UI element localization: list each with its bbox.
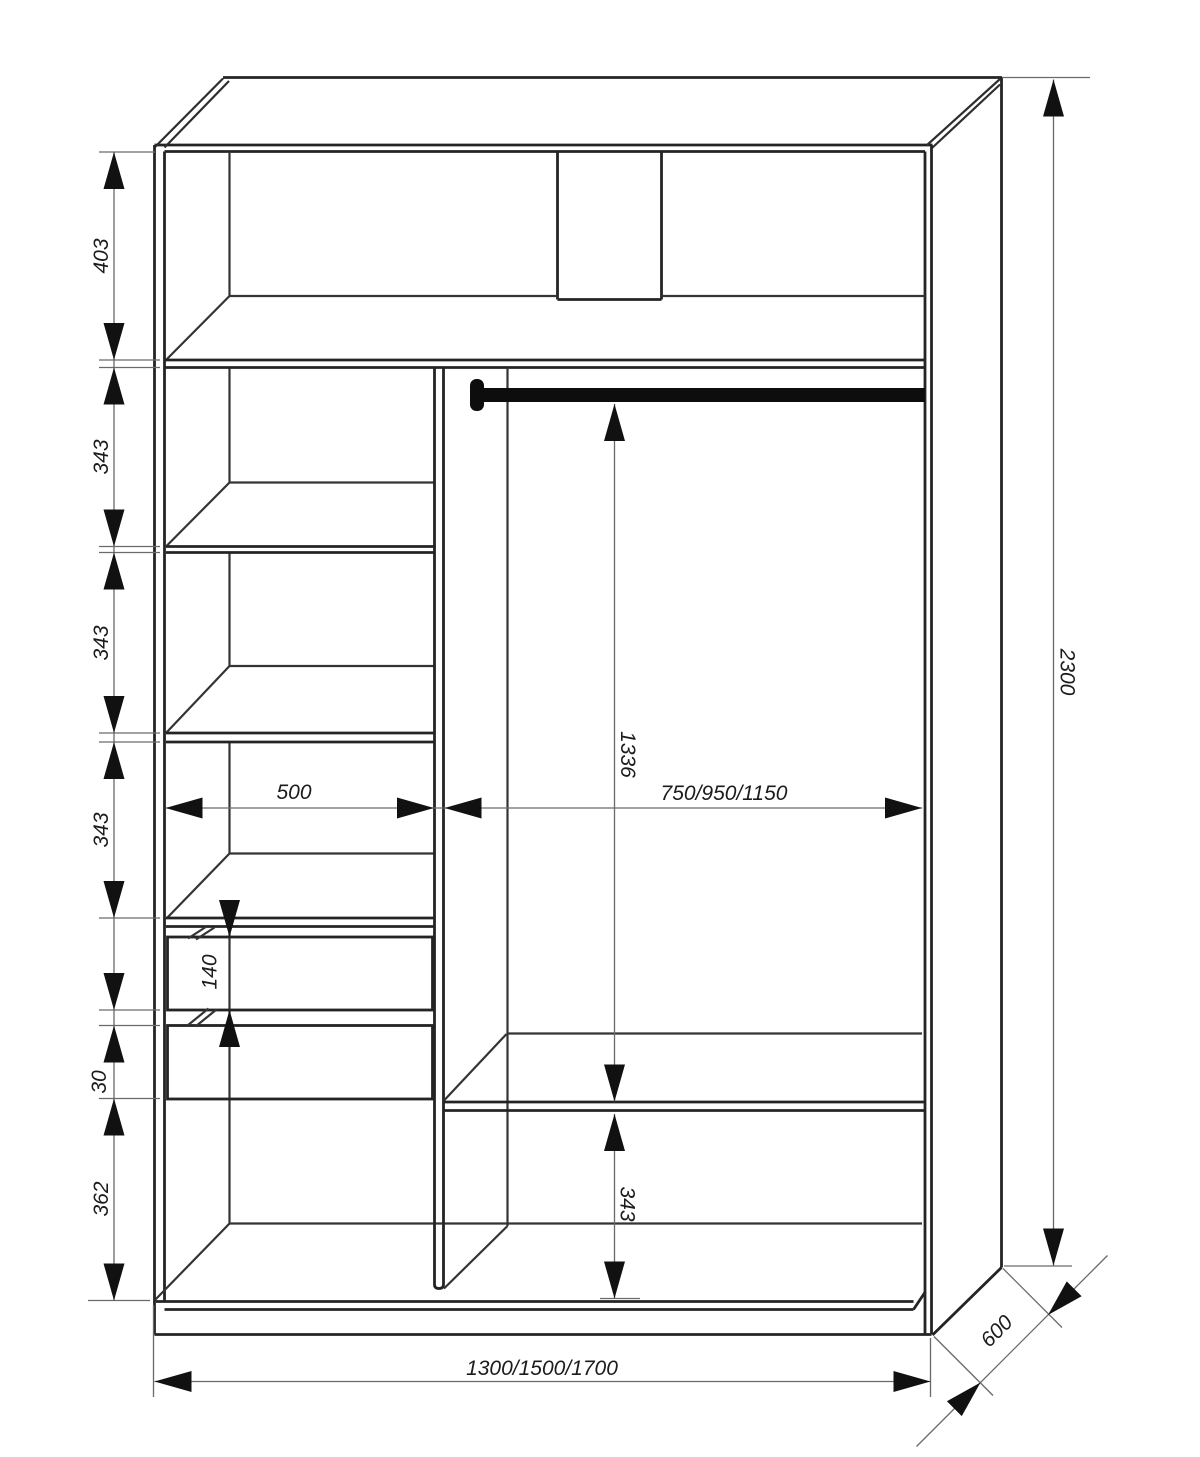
svg-text:2300: 2300 [1056,648,1079,696]
svg-text:343: 343 [90,812,113,847]
svg-text:500: 500 [276,781,311,804]
svg-text:750/950/1150: 750/950/1150 [661,782,788,805]
svg-text:362: 362 [90,1181,113,1216]
svg-text:140: 140 [199,954,222,989]
svg-text:343: 343 [616,1186,639,1221]
svg-text:1336: 1336 [616,731,639,778]
svg-text:403: 403 [90,238,113,273]
svg-text:343: 343 [90,625,113,660]
svg-text:1300/1500/1700: 1300/1500/1700 [466,1357,618,1380]
svg-text:30: 30 [88,1070,111,1094]
svg-text:343: 343 [90,439,113,474]
